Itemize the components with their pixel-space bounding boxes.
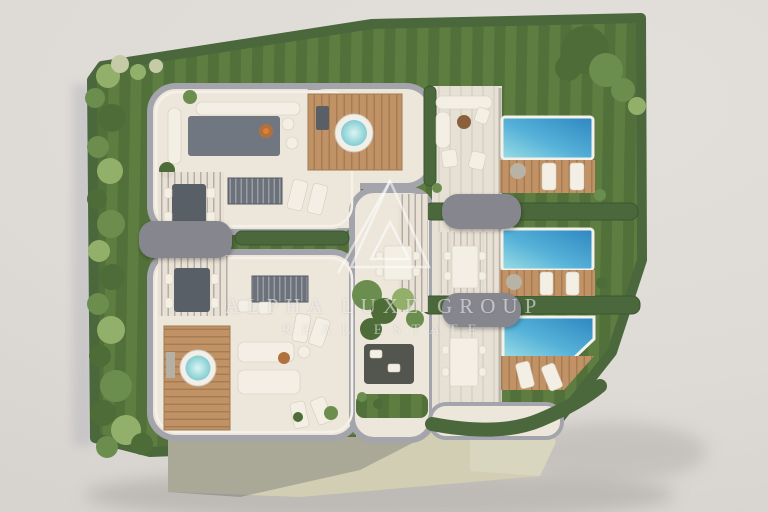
- potted-plant: [373, 399, 383, 409]
- bush: [111, 55, 129, 73]
- dining-chair: [164, 212, 172, 222]
- hedge-wing-side: [424, 86, 436, 186]
- dining-chair: [442, 346, 449, 354]
- potted-plant: [432, 183, 442, 193]
- boulder: [506, 274, 522, 290]
- tree: [87, 189, 107, 209]
- tree: [131, 433, 153, 455]
- watermark-subtitle-text: REAL ESTATE: [0, 322, 768, 339]
- coffee-table: [457, 115, 471, 129]
- potted-plant: [293, 412, 303, 422]
- dining-chair: [479, 272, 486, 280]
- dining-chair: [479, 368, 486, 376]
- bush: [149, 59, 163, 73]
- tree: [87, 136, 109, 158]
- pouf: [298, 346, 310, 358]
- pool-1: [502, 117, 593, 159]
- dining-chair: [442, 368, 449, 376]
- dining-chair: [479, 252, 486, 260]
- dining-chair: [376, 268, 383, 276]
- bush: [130, 64, 146, 80]
- site-plan-render: ALPHA LUXE GROUP REAL ESTATE: [0, 0, 768, 512]
- dining-chair: [207, 212, 215, 222]
- dining-chair: [413, 268, 420, 276]
- sun-lounger: [542, 163, 556, 190]
- dining-chair: [207, 188, 215, 198]
- pool-2: [502, 229, 593, 270]
- outdoor-sofa: [168, 108, 181, 164]
- outdoor-sofa: [436, 96, 492, 109]
- courtyard-table: [384, 246, 412, 280]
- lounge-cushion: [388, 364, 400, 372]
- potted-plant: [357, 392, 367, 402]
- lounge-cushion: [370, 350, 382, 358]
- outdoor-sofa: [196, 102, 300, 115]
- potted-plant: [324, 406, 338, 420]
- tree: [96, 436, 118, 458]
- potted-plant: [183, 90, 197, 104]
- dining-chair: [164, 188, 172, 198]
- tree: [99, 264, 125, 290]
- stairs-upper: [228, 178, 282, 204]
- pouf: [282, 118, 294, 130]
- tree: [628, 97, 646, 115]
- tree: [611, 78, 635, 102]
- deck-bench: [316, 106, 329, 130]
- outdoor-sofa: [436, 112, 450, 148]
- tree: [100, 370, 132, 402]
- tree: [98, 104, 126, 132]
- sun-lounger: [570, 163, 584, 190]
- dining-chair: [211, 274, 219, 284]
- tree: [97, 158, 123, 184]
- hedge-between-terraces: [235, 231, 349, 245]
- dining-chair: [413, 252, 420, 260]
- outdoor-sofa: [238, 370, 300, 394]
- dining-chair: [165, 274, 173, 284]
- tree: [555, 55, 581, 81]
- boulder: [510, 163, 526, 179]
- tree: [90, 400, 116, 426]
- hot-tub-water: [186, 356, 211, 381]
- garden-shrub: [594, 189, 606, 201]
- dining-table-upper: [172, 184, 206, 224]
- dining-chair: [444, 252, 451, 260]
- armchair: [441, 149, 458, 168]
- dining-chair: [444, 272, 451, 280]
- sun-lounger: [566, 272, 579, 295]
- pouf: [286, 137, 298, 149]
- dining-chair: [479, 346, 486, 354]
- dining-table-bottom: [450, 338, 478, 386]
- tree: [97, 210, 125, 238]
- site-plan-svg: [0, 0, 768, 512]
- tree: [88, 240, 110, 262]
- garden-shrub: [596, 277, 608, 289]
- unit-label-badge-1: [139, 221, 232, 258]
- fire-pit-flame: [263, 128, 269, 134]
- tree: [85, 88, 105, 108]
- unit-label-badge-2: [442, 194, 521, 229]
- dining-table-mid: [452, 246, 478, 288]
- deck-steps: [166, 352, 175, 378]
- fire-pit: [278, 352, 290, 364]
- tree: [89, 345, 111, 367]
- hot-tub-water: [341, 120, 367, 146]
- sun-lounger: [540, 272, 553, 295]
- watermark-brand-text: ALPHA LUXE GROUP: [0, 294, 768, 319]
